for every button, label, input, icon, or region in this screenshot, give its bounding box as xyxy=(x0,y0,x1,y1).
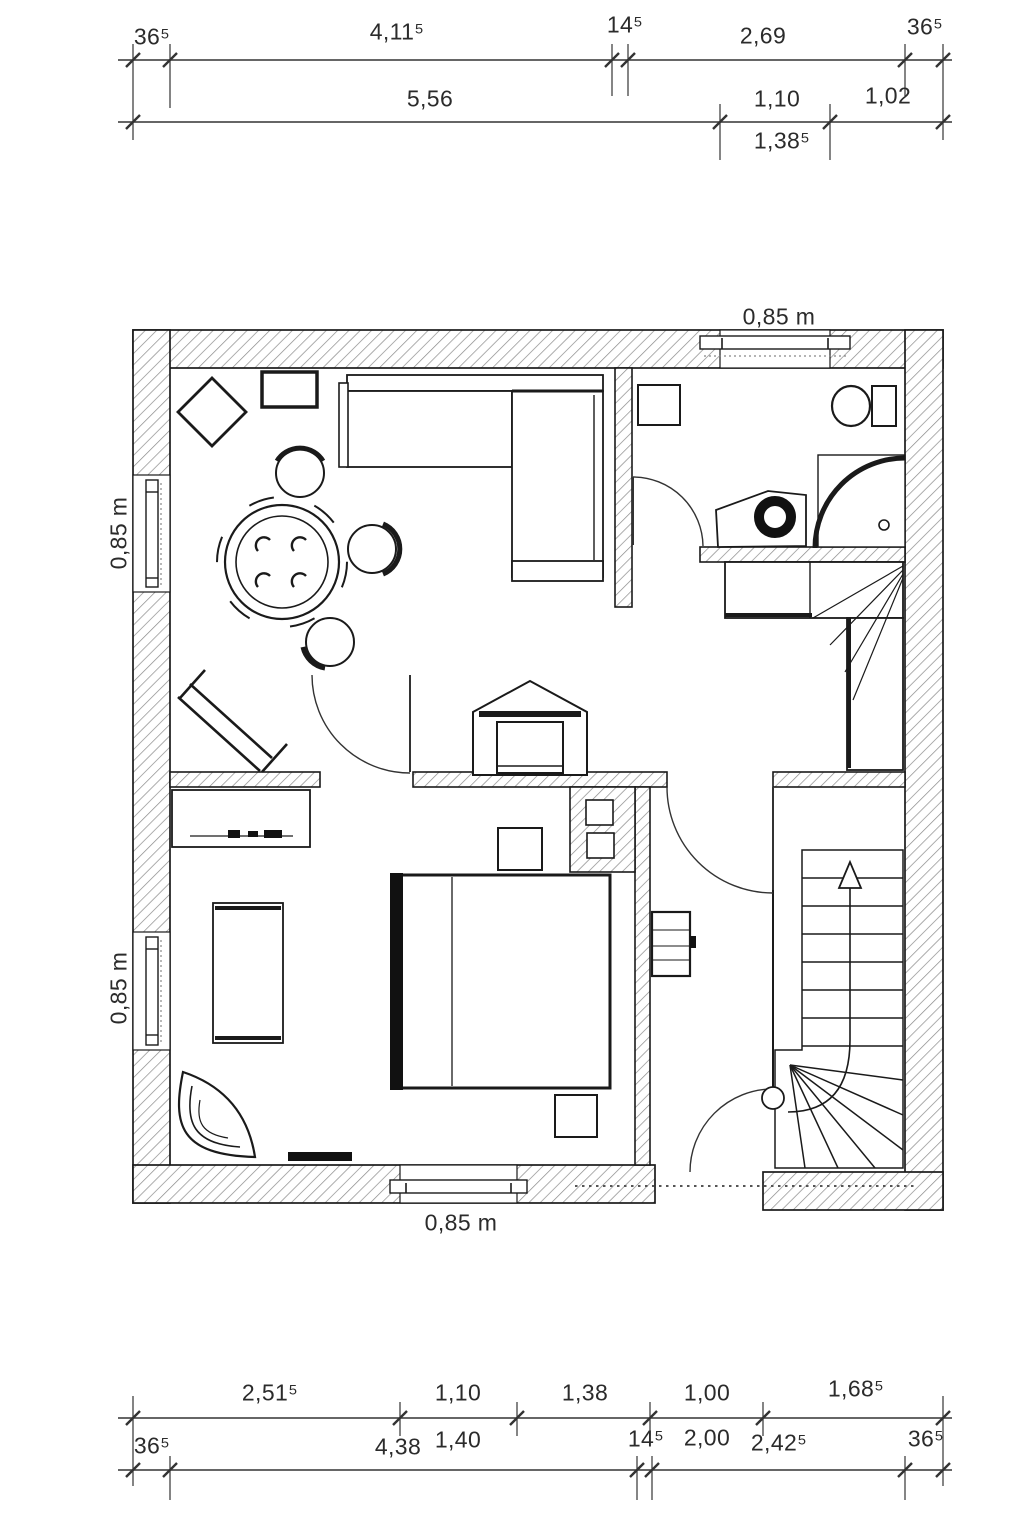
staircase xyxy=(762,850,903,1168)
floor-plan-page: 36⁵ 4,11⁵ 14⁵ 2,69 36⁵ 5,56 1,10 1,02 1,… xyxy=(0,0,1024,1536)
dim-top-living-width: 4,11⁵ xyxy=(370,19,425,46)
dim-bot2-a: 4,38 xyxy=(375,1434,421,1461)
window-living-left xyxy=(133,475,170,592)
corner-shower xyxy=(815,455,905,548)
dim-bot2-right-wall: 36⁵ xyxy=(908,1426,944,1453)
sill-label-bottom: 0,85 m xyxy=(425,1210,498,1237)
sill-label-top: 0,85 m xyxy=(743,304,816,331)
dim-bot-a: 2,51⁵ xyxy=(242,1380,298,1407)
dim-bot2-left-wall: 36⁵ xyxy=(134,1433,170,1460)
dim-top-end: 1,02 xyxy=(865,83,911,110)
window-bedroom-left xyxy=(133,932,170,1050)
dim-top-left-wall: 36⁵ xyxy=(134,24,170,51)
dimension-lines-bottom xyxy=(118,1396,952,1500)
door-sill xyxy=(288,1152,352,1161)
radiator xyxy=(652,912,696,976)
nightstand-bottom xyxy=(555,1095,597,1137)
window-bathroom-top xyxy=(700,330,850,368)
dining-chair-right xyxy=(348,524,400,574)
washbasin xyxy=(716,491,806,547)
dim-bot-b: 1,10 xyxy=(435,1380,481,1407)
door-stair-hall xyxy=(667,787,773,893)
dim-top-alt: 1,38⁵ xyxy=(754,128,810,155)
dim-bot-d-below: 2,00 xyxy=(684,1425,730,1452)
dim-top-right-wall: 36⁵ xyxy=(907,14,943,41)
dim-bot-c: 1,38 xyxy=(562,1380,608,1407)
stair-newel-post xyxy=(762,1087,784,1109)
diagonal-bench xyxy=(178,670,287,772)
dim-bot-b-below: 1,40 xyxy=(435,1427,481,1454)
dim-bot-e: 1,68⁵ xyxy=(828,1376,884,1403)
double-bed xyxy=(390,873,610,1090)
vanity-cabinet xyxy=(638,385,680,425)
nightstand-top xyxy=(498,828,542,870)
corner-chair xyxy=(179,1072,255,1157)
tiled-stove xyxy=(473,681,587,775)
door-bathroom xyxy=(633,477,703,546)
dim-top-bath-width: 2,69 xyxy=(740,23,786,50)
dining-chair-bottom xyxy=(303,618,354,668)
toilet xyxy=(832,386,896,426)
sideboard xyxy=(262,372,317,407)
dimension-lines-top xyxy=(118,44,952,160)
dim-bot2-partition: 14⁵ xyxy=(628,1426,664,1453)
sill-label-left-upper: 0,85 m xyxy=(106,497,133,570)
dim-top-window: 1,10 xyxy=(754,86,800,113)
door-stair-bottom xyxy=(690,1089,773,1172)
dim-top-total: 5,56 xyxy=(407,86,453,113)
decor-diamond xyxy=(178,378,246,446)
desk xyxy=(172,790,310,847)
dresser xyxy=(213,903,283,1043)
built-in-wardrobe xyxy=(725,562,903,770)
dim-bot2-b: 2,42⁵ xyxy=(751,1430,807,1457)
dining-chair-top xyxy=(276,448,324,497)
window-bedroom-bottom xyxy=(390,1165,527,1203)
dim-top-partition: 14⁵ xyxy=(607,12,643,39)
chimney xyxy=(570,787,635,872)
dim-bot-d: 1,00 xyxy=(684,1380,730,1407)
door-living-bedroom xyxy=(312,675,410,773)
dining-table xyxy=(217,497,347,627)
sill-label-left-lower: 0,85 m xyxy=(106,952,133,1025)
floor-plan-drawing xyxy=(0,0,1024,1536)
